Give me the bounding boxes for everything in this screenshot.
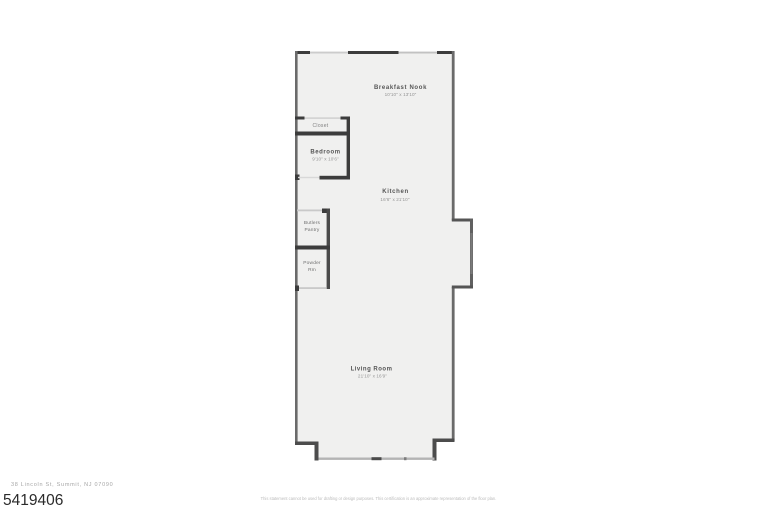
svg-text:Living Room: Living Room — [351, 366, 393, 372]
svg-text:Pantry: Pantry — [304, 227, 319, 233]
svg-text:Breakfast Nook: Breakfast Nook — [374, 85, 427, 91]
svg-text:Powder: Powder — [303, 260, 321, 266]
svg-text:Rm: Rm — [308, 267, 316, 273]
svg-text:21'10" x 16'9": 21'10" x 16'9" — [358, 374, 387, 379]
svg-text:Butlers: Butlers — [304, 220, 321, 226]
svg-text:9'10" x 10'6": 9'10" x 10'6" — [312, 157, 339, 162]
svg-text:16'6" x 21'10": 16'6" x 21'10" — [380, 197, 409, 202]
svg-text:Kitchen: Kitchen — [382, 189, 409, 195]
svg-text:10'10" x 13'10": 10'10" x 13'10" — [385, 92, 417, 97]
svg-text:Closet: Closet — [313, 123, 329, 129]
svg-text:Bedroom: Bedroom — [310, 149, 340, 155]
